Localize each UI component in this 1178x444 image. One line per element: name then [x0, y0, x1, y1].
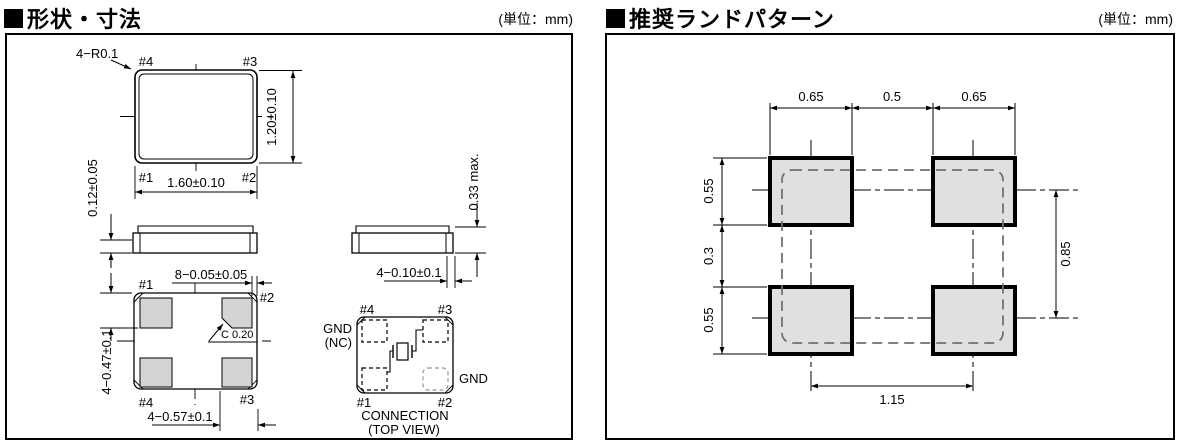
pad-height-dim: 4−0.47±0.1: [99, 329, 114, 394]
corner-radius-note: 4−R0.1: [76, 46, 118, 61]
gnd-label: GND: [459, 371, 488, 386]
terminal-thickness-dim: 0.12±0.05: [85, 159, 100, 217]
top-view-pin2-label: #2: [242, 170, 256, 185]
chamfer-dim: C 0.20: [221, 329, 253, 341]
datasheet-drawing-page: 形状・寸法 (単位：mm) 推奨ランドパターン (単位：mm) #4 #3 #1…: [0, 0, 1178, 444]
land-pitch-vertical-dim: 0.85: [1058, 241, 1073, 266]
top-view: #4 #3 #1 #2 4−R0.1 1.20±0.10 1.60±0.10: [76, 46, 302, 199]
pad-width-dim: 4−0.57±0.1: [147, 409, 212, 424]
bottom-view-pin2-label: #2: [260, 290, 274, 305]
bottom-view: #1 #2 #4 #3 8−0.05±0.05 4−0.47±0.1 C 0.2…: [99, 267, 276, 431]
bottom-view-pin1-label: #1: [139, 277, 153, 292]
top-view-height-dim: 1.20±0.10: [264, 88, 279, 146]
land-pad-gap-dim: 0.5: [883, 89, 901, 104]
top-view-width-dim: 1.60±0.10: [167, 175, 225, 190]
land-pad-width-left-dim: 0.65: [798, 89, 823, 104]
gnd-nc-label-line2: (NC): [325, 335, 352, 350]
side-view: 0.33 max. 4−0.10±0.1: [352, 153, 486, 288]
land-pitch-horizontal-dim: 1.15: [879, 392, 904, 407]
top-view-pin1-label: #1: [139, 170, 153, 185]
land-pad-height-top-dim: 0.55: [701, 178, 716, 203]
conn-pin3-label: #3: [438, 302, 452, 317]
bottom-view-pin4-label: #4: [139, 395, 153, 410]
package-height-dim: 0.33 max.: [466, 153, 481, 210]
connection-caption-line2: (TOP VIEW): [368, 422, 440, 437]
land-pad-width-right-dim: 0.65: [961, 89, 986, 104]
connection-caption-line1: CONNECTION: [361, 408, 448, 423]
gnd-nc-label-line1: GND: [323, 321, 352, 336]
conn-pin4-label: #4: [360, 302, 374, 317]
top-view-pin3-label: #3: [243, 54, 257, 69]
land-pad-height-bottom-dim: 0.55: [701, 307, 716, 332]
land-pattern: 0.65 0.5 0.65 0.55 0.3 0.55 0.85 1.15: [701, 89, 1078, 407]
top-view-pin4-label: #4: [139, 54, 153, 69]
land-pad-gap-v-dim: 0.3: [701, 247, 716, 265]
castellation-width-dim: 4−0.10±0.1: [376, 265, 441, 280]
drawing-layer: #4 #3 #1 #2 4−R0.1 1.20±0.10 1.60±0.10: [0, 0, 1178, 444]
connection-diagram: #4 #3 #1 #2 GND (NC) GND CONNECTION (TOP…: [323, 302, 488, 437]
bottom-view-pin3-label: #3: [240, 392, 254, 407]
edge-clearance-dim: 8−0.05±0.05: [175, 267, 248, 282]
